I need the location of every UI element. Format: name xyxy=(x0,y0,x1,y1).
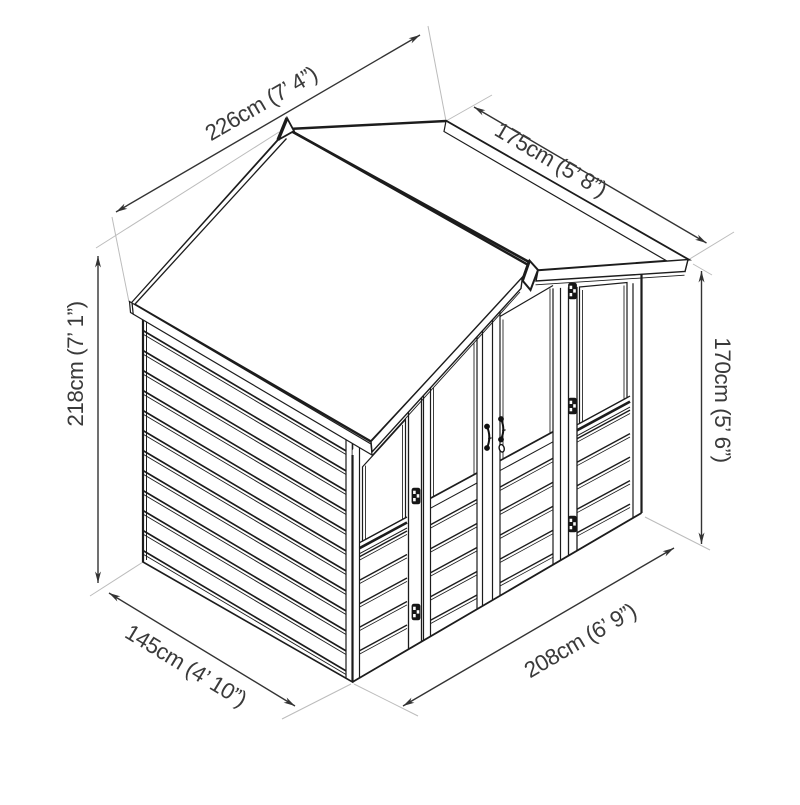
svg-text:218cm (7’ 1”): 218cm (7’ 1”) xyxy=(63,301,88,426)
svg-text:170cm (5’ 6”): 170cm (5’ 6”) xyxy=(710,337,735,462)
